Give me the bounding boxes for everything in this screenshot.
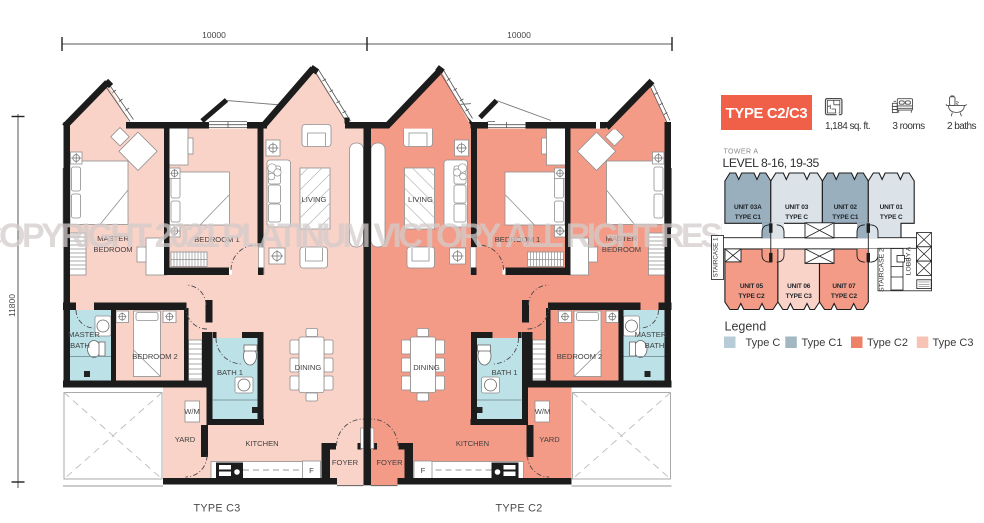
svg-text:UNIT 01: UNIT 01 bbox=[880, 204, 904, 211]
svg-text:LIVING: LIVING bbox=[408, 195, 433, 204]
svg-text:BEDROOM 2: BEDROOM 2 bbox=[557, 352, 603, 361]
svg-text:F: F bbox=[309, 466, 314, 475]
svg-text:W/M: W/M bbox=[184, 407, 200, 416]
svg-text:1,184 sq. ft.: 1,184 sq. ft. bbox=[825, 121, 870, 132]
svg-text:COPYRIGHT 2021 PLATINUM VICTOR: COPYRIGHT 2021 PLATINUM VICTORY. ALL RIG… bbox=[0, 217, 821, 255]
svg-text:TOWER A: TOWER A bbox=[724, 149, 759, 156]
svg-text:UNIT 02: UNIT 02 bbox=[834, 204, 858, 211]
svg-text:11800: 11800 bbox=[7, 294, 17, 317]
svg-text:Legend: Legend bbox=[725, 320, 767, 334]
svg-text:Type C3: Type C3 bbox=[933, 337, 974, 349]
svg-text:YARD: YARD bbox=[175, 435, 196, 444]
svg-text:UNIT 06: UNIT 06 bbox=[787, 283, 811, 290]
svg-text:TYPE C2: TYPE C2 bbox=[495, 503, 542, 515]
svg-text:TYPE C1: TYPE C1 bbox=[735, 214, 762, 221]
svg-text:3 rooms: 3 rooms bbox=[892, 121, 925, 132]
svg-text:10000: 10000 bbox=[202, 30, 226, 40]
svg-text:LOBBY A: LOBBY A bbox=[906, 246, 913, 275]
svg-text:TYPE C2: TYPE C2 bbox=[831, 293, 858, 300]
svg-text:DINING: DINING bbox=[413, 363, 440, 372]
svg-text:2 baths: 2 baths bbox=[947, 121, 977, 132]
svg-text:UNIT 03A: UNIT 03A bbox=[734, 204, 762, 211]
svg-text:MASTER: MASTER bbox=[68, 330, 100, 339]
svg-text:W/M: W/M bbox=[535, 407, 551, 416]
svg-text:BATH 1: BATH 1 bbox=[217, 368, 243, 377]
svg-text:TYPE C: TYPE C bbox=[880, 214, 903, 221]
svg-text:Type C: Type C bbox=[746, 337, 781, 349]
svg-text:BATH: BATH bbox=[645, 341, 665, 350]
svg-text:BATH: BATH bbox=[70, 341, 90, 350]
svg-text:UNIT 03: UNIT 03 bbox=[785, 204, 809, 211]
svg-text:DINING: DINING bbox=[295, 363, 322, 372]
svg-text:10000: 10000 bbox=[507, 30, 531, 40]
svg-text:TYPE C1: TYPE C1 bbox=[832, 214, 859, 221]
svg-text:MASTER: MASTER bbox=[635, 330, 667, 339]
svg-text:STAIRCASE 1: STAIRCASE 1 bbox=[713, 237, 720, 277]
svg-text:TYPE C: TYPE C bbox=[785, 214, 808, 221]
svg-text:TYPE C2/C3: TYPE C2/C3 bbox=[726, 106, 808, 122]
svg-text:UNIT 05: UNIT 05 bbox=[740, 283, 764, 290]
svg-text:LEVEL 8-16, 19-35: LEVEL 8-16, 19-35 bbox=[723, 156, 820, 170]
svg-text:UNIT 07: UNIT 07 bbox=[832, 283, 856, 290]
svg-text:LIVING: LIVING bbox=[302, 195, 327, 204]
svg-text:BEDROOM 2: BEDROOM 2 bbox=[132, 352, 178, 361]
svg-text:TYPE C3: TYPE C3 bbox=[193, 503, 240, 515]
svg-text:BATH 1: BATH 1 bbox=[491, 368, 517, 377]
svg-text:YARD: YARD bbox=[539, 435, 560, 444]
svg-text:Type C1: Type C1 bbox=[802, 337, 843, 349]
svg-text:Type C2: Type C2 bbox=[867, 337, 908, 349]
svg-text:TYPE C3: TYPE C3 bbox=[786, 293, 813, 300]
svg-text:FOYER: FOYER bbox=[332, 458, 359, 467]
svg-text:STAIRCASE 2: STAIRCASE 2 bbox=[879, 248, 886, 292]
svg-text:F: F bbox=[421, 466, 426, 475]
svg-text:TYPE C2: TYPE C2 bbox=[738, 293, 765, 300]
svg-text:KITCHEN: KITCHEN bbox=[456, 439, 489, 448]
svg-text:FOYER: FOYER bbox=[376, 458, 403, 467]
svg-text:KITCHEN: KITCHEN bbox=[245, 439, 278, 448]
